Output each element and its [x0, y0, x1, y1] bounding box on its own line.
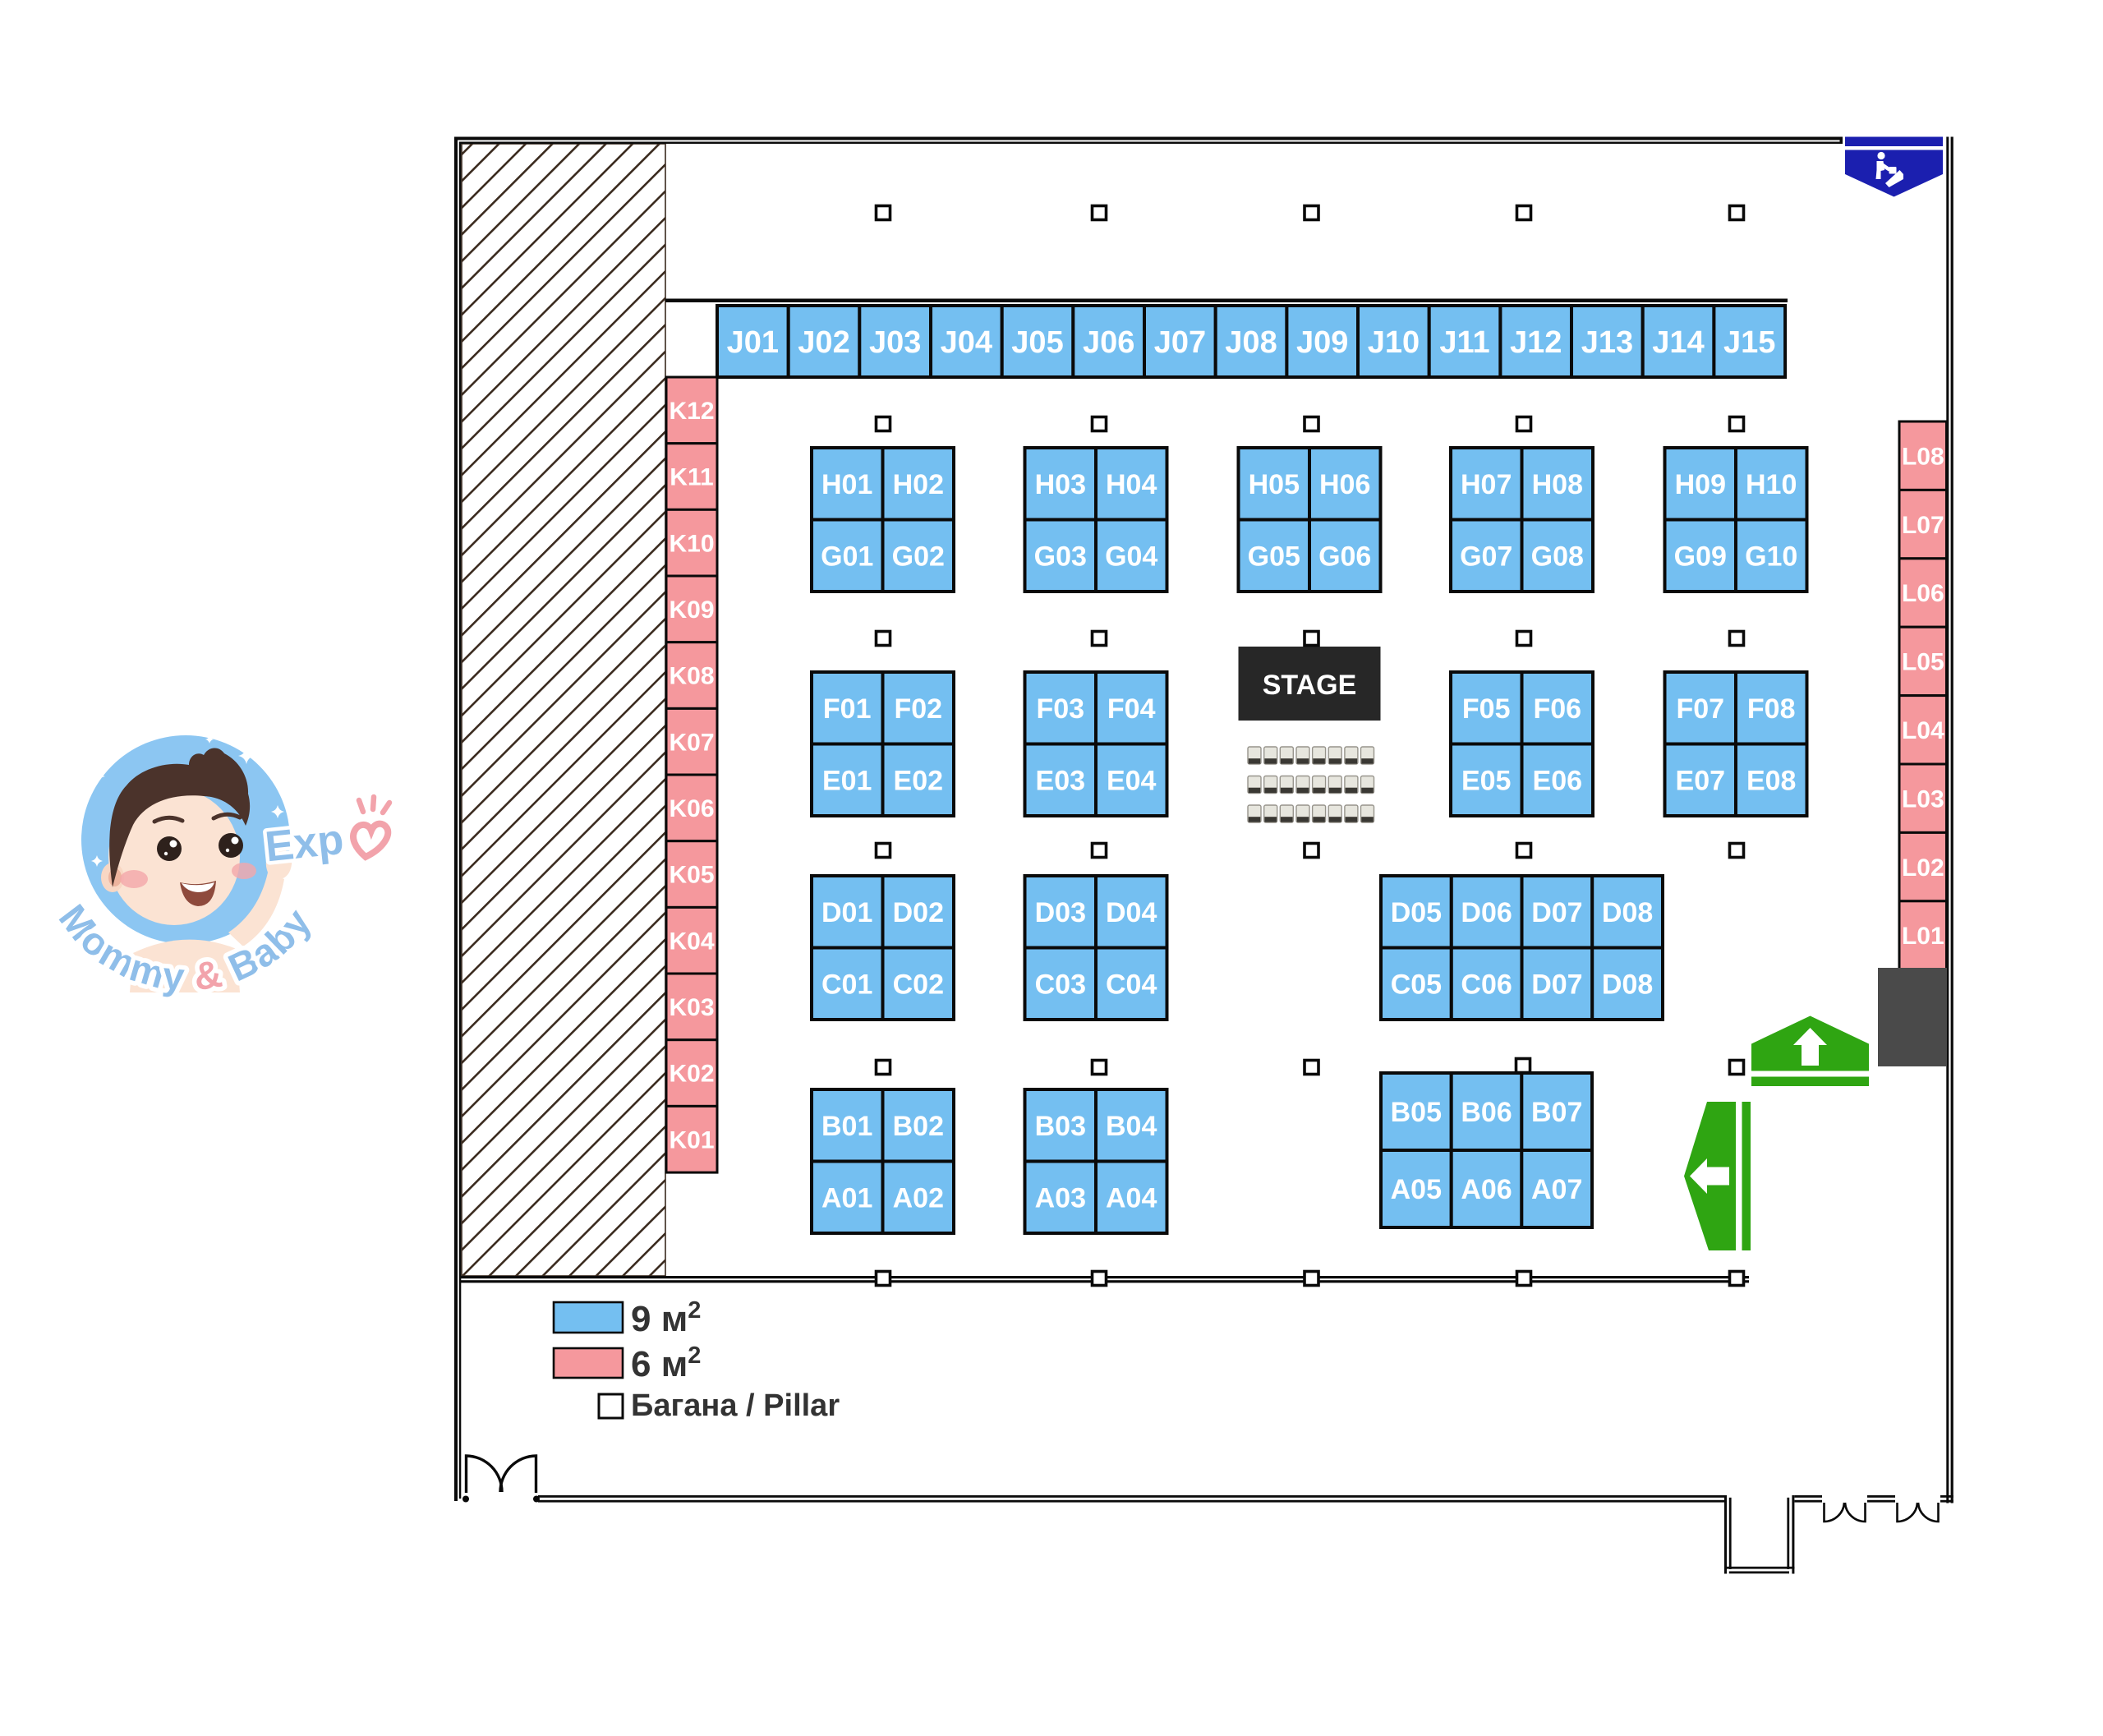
svg-text:K02: K02	[669, 1061, 714, 1088]
svg-text:H01: H01	[821, 469, 872, 500]
svg-text:G06: G06	[1318, 541, 1371, 572]
svg-text:E06: E06	[1533, 765, 1583, 796]
svg-text:L08: L08	[1902, 443, 1944, 470]
svg-text:K10: K10	[669, 530, 714, 557]
svg-text:B04: B04	[1106, 1111, 1157, 1142]
svg-text:K01: K01	[669, 1126, 714, 1153]
svg-text:G01: G01	[821, 541, 873, 572]
svg-text:F06: F06	[1534, 693, 1582, 725]
svg-text:A07: A07	[1531, 1174, 1582, 1205]
svg-text:L02: L02	[1902, 854, 1944, 882]
svg-text:H10: H10	[1746, 469, 1797, 500]
svg-text:H05: H05	[1249, 469, 1300, 500]
svg-text:A05: A05	[1391, 1174, 1442, 1205]
svg-text:K04: K04	[669, 928, 714, 955]
svg-text:F01: F01	[823, 693, 872, 725]
svg-text:F08: F08	[1747, 693, 1796, 725]
svg-text:F03: F03	[1037, 693, 1085, 725]
svg-text:C01: C01	[821, 969, 872, 1000]
svg-text:F05: F05	[1462, 693, 1511, 725]
svg-text:H04: H04	[1106, 469, 1157, 500]
svg-text:F02: F02	[895, 693, 943, 725]
svg-text:D05: D05	[1391, 897, 1442, 928]
svg-text:H07: H07	[1461, 469, 1512, 500]
svg-text:D07: D07	[1531, 897, 1582, 928]
svg-text:J08: J08	[1225, 325, 1277, 360]
svg-text:Багана / Pillar: Багана / Pillar	[631, 1388, 840, 1423]
svg-text:K11: K11	[670, 464, 713, 491]
svg-text:D06: D06	[1461, 897, 1512, 928]
svg-text:E01: E01	[822, 765, 872, 796]
svg-text:K06: K06	[669, 795, 714, 822]
svg-text:J13: J13	[1581, 325, 1633, 360]
svg-text:A04: A04	[1106, 1182, 1157, 1213]
svg-text:STAGE: STAGE	[1263, 670, 1357, 701]
svg-text:K03: K03	[669, 994, 714, 1021]
svg-text:J05: J05	[1011, 325, 1063, 360]
svg-text:A02: A02	[893, 1182, 944, 1213]
svg-text:B02: B02	[893, 1111, 944, 1142]
svg-text:F04: F04	[1107, 693, 1156, 725]
svg-text:L07: L07	[1902, 512, 1944, 539]
svg-text:E08: E08	[1746, 765, 1797, 796]
svg-text:J01: J01	[727, 325, 779, 360]
svg-text:E04: E04	[1107, 765, 1157, 796]
svg-text:D08: D08	[1602, 969, 1653, 1000]
svg-text:J15: J15	[1723, 325, 1775, 360]
svg-text:A01: A01	[821, 1182, 872, 1213]
svg-text:Exp: Exp	[263, 816, 346, 872]
svg-text:D07: D07	[1531, 969, 1582, 1000]
svg-text:H09: H09	[1675, 469, 1726, 500]
svg-text:E02: E02	[894, 765, 944, 796]
svg-text:L01: L01	[1902, 923, 1944, 950]
svg-text:L05: L05	[1902, 649, 1944, 676]
svg-text:E07: E07	[1676, 765, 1726, 796]
svg-text:G08: G08	[1531, 541, 1584, 572]
svg-text:G10: G10	[1745, 541, 1797, 572]
svg-text:J03: J03	[869, 325, 921, 360]
svg-text:D02: D02	[893, 897, 944, 928]
svg-text:D01: D01	[821, 897, 872, 928]
svg-text:K09: K09	[669, 596, 714, 624]
svg-text:H03: H03	[1035, 469, 1086, 500]
svg-text:D03: D03	[1035, 897, 1086, 928]
svg-text:L03: L03	[1902, 785, 1944, 813]
svg-text:C03: C03	[1035, 969, 1086, 1000]
svg-text:F07: F07	[1677, 693, 1725, 725]
svg-text:C06: C06	[1461, 969, 1512, 1000]
svg-text:H02: H02	[893, 469, 944, 500]
svg-text:J10: J10	[1368, 325, 1420, 360]
svg-text:C04: C04	[1106, 969, 1157, 1000]
svg-text:C05: C05	[1391, 969, 1442, 1000]
svg-text:L06: L06	[1902, 580, 1944, 607]
svg-text:L04: L04	[1902, 717, 1944, 744]
svg-text:J11: J11	[1439, 325, 1489, 360]
svg-text:E05: E05	[1461, 765, 1512, 796]
svg-text:K05: K05	[669, 862, 714, 889]
svg-text:J14: J14	[1652, 325, 1704, 360]
svg-text:G09: G09	[1674, 541, 1727, 572]
svg-text:G02: G02	[892, 541, 945, 572]
svg-text:B06: B06	[1461, 1097, 1512, 1128]
svg-text:H08: H08	[1532, 469, 1583, 500]
svg-text:J06: J06	[1083, 325, 1134, 360]
svg-text:C02: C02	[893, 969, 944, 1000]
svg-text:E03: E03	[1036, 765, 1086, 796]
svg-text:K08: K08	[669, 663, 714, 690]
svg-text:G04: G04	[1105, 541, 1157, 572]
svg-text:G03: G03	[1034, 541, 1087, 572]
svg-text:G07: G07	[1460, 541, 1512, 572]
svg-text:J09: J09	[1296, 325, 1348, 360]
svg-text:J04: J04	[941, 325, 992, 360]
svg-text:B05: B05	[1391, 1097, 1442, 1128]
svg-text:A03: A03	[1035, 1182, 1086, 1213]
svg-text:A06: A06	[1461, 1174, 1512, 1205]
svg-text:B03: B03	[1035, 1111, 1086, 1142]
svg-text:G05: G05	[1248, 541, 1300, 572]
svg-text:D08: D08	[1602, 897, 1653, 928]
svg-text:B07: B07	[1531, 1097, 1582, 1128]
svg-text:K12: K12	[669, 398, 714, 425]
svg-text:B01: B01	[821, 1111, 872, 1142]
svg-text:H06: H06	[1319, 469, 1370, 500]
svg-text:D04: D04	[1106, 897, 1157, 928]
svg-text:J07: J07	[1154, 325, 1206, 360]
svg-text:K07: K07	[669, 729, 714, 756]
svg-text:J02: J02	[798, 325, 849, 360]
svg-text:J12: J12	[1510, 325, 1562, 360]
